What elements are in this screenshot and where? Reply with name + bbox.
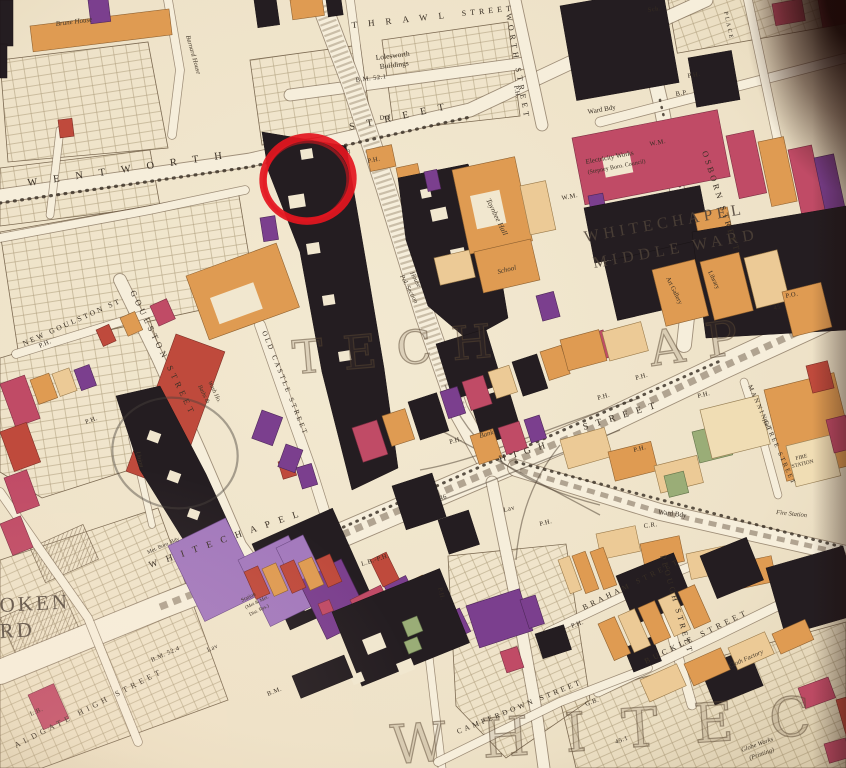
map-canvas: TECH AP WHITEC WHITECHAPEL MIDDLE WARD O… — [0, 0, 846, 768]
ward-label-portsoken-2: RD — [0, 617, 35, 643]
map-photo: TECH AP WHITEC WHITECHAPEL MIDDLE WARD O… — [0, 0, 846, 768]
ward-label-portsoken-1: OKEN — [0, 589, 70, 617]
